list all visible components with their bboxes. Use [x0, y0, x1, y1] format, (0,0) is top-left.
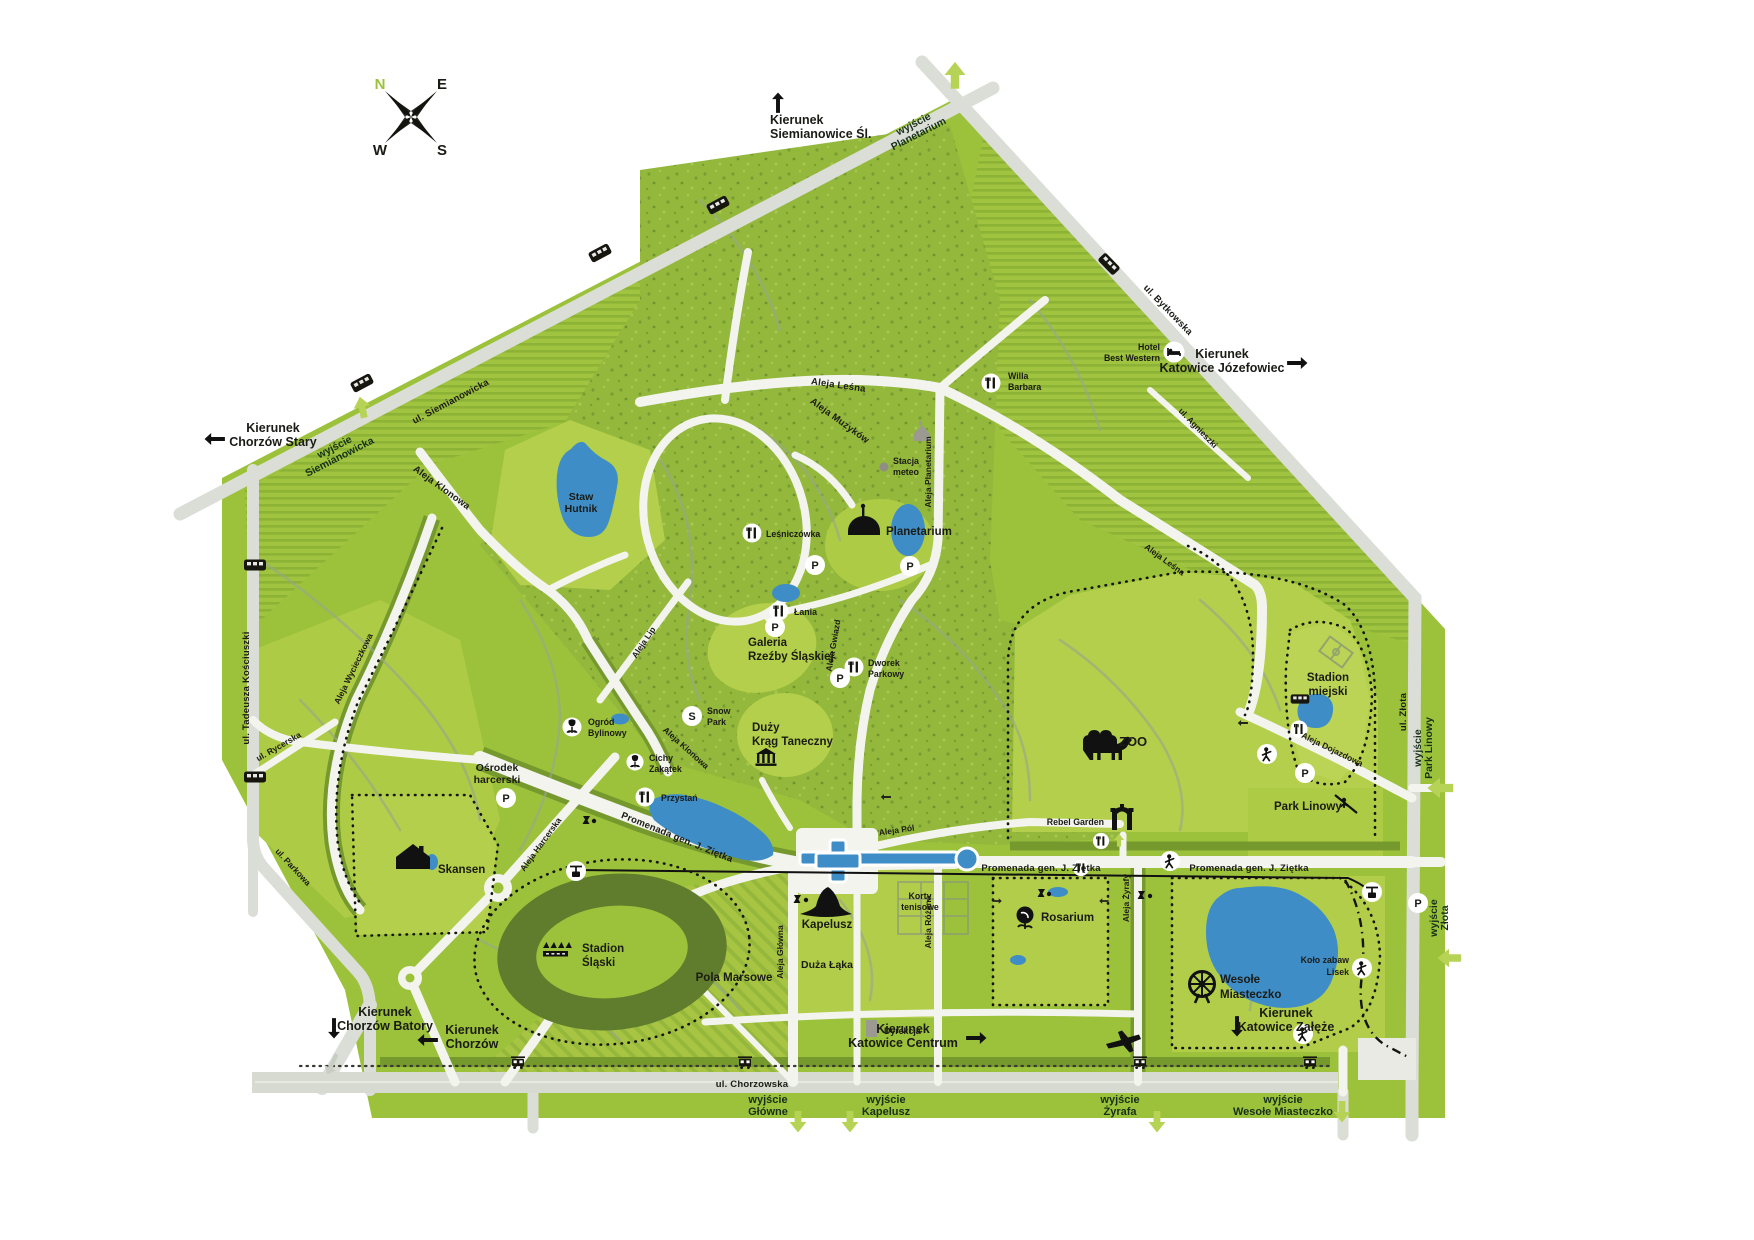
dir-jozefowiec-2: Katowice Józefowiec	[1159, 361, 1284, 375]
poi-stacja-meteo-2: meteo	[893, 467, 920, 477]
poi-planetarium: Planetarium	[886, 526, 952, 538]
poi-stacja-meteo: Stacja	[893, 456, 919, 466]
compass-rose: N E W S	[373, 76, 447, 159]
street-promenada-2: Promenada gen. J. Ziętka	[981, 863, 1101, 874]
poi-wesole-2: Miasteczko	[1220, 989, 1281, 1001]
poi-osrodek: Ośrodek	[476, 762, 519, 774]
parking-letter: P	[811, 560, 818, 572]
poi-rebel-garden: Rebel Garden	[1047, 817, 1104, 827]
compass-s: S	[437, 142, 447, 159]
poi-staw-hutnik-2: Hutnik	[565, 503, 598, 515]
snowpark-icon: S	[682, 706, 702, 726]
playground-icon	[1257, 744, 1277, 764]
street-chorzowska: ul. Chorzowska	[716, 1079, 789, 1090]
poi-hotel: Hotel	[1138, 342, 1160, 352]
exit-zyrafa: wyjście	[1099, 1094, 1139, 1106]
playground-icon	[1352, 958, 1372, 978]
exit-wesole: wyjście	[1262, 1094, 1302, 1106]
restaurant-icon	[1093, 833, 1109, 849]
poi-duzy-krag-2: Krąg Taneczny	[752, 736, 834, 748]
poi-park-linowy: Park Linowy	[1274, 801, 1342, 813]
parking-letter: P	[1414, 898, 1421, 910]
parking-letter: P	[771, 622, 778, 634]
poi-wesole: Wesołe	[1220, 974, 1260, 986]
poi-dworek-2: Parkowy	[868, 669, 904, 679]
dir-zaleze-2: Katowice Załęże	[1238, 1020, 1335, 1034]
poi-dyrekcja: Dyrekcja	[884, 1026, 921, 1036]
poi-willa-2: Barbara	[1008, 382, 1041, 392]
exit-glowne-2: Główne	[748, 1106, 788, 1118]
poi-kolo-zabaw-2: Lisek	[1327, 967, 1350, 977]
restaurant-icon	[982, 374, 1001, 393]
street-kosciuszki: ul. Tadeusza Kościuszki	[241, 631, 252, 744]
parking-letter: P	[906, 561, 913, 573]
playground-icon	[1160, 851, 1180, 871]
exit-wesole-2: Wesołe Miasteczko	[1233, 1106, 1333, 1118]
snowpark-letter: S	[688, 711, 695, 723]
poi-stadion-miejski-2: miejski	[1309, 686, 1348, 698]
parking-letter: P	[1301, 768, 1308, 780]
poi-kapelusz: Kapelusz	[802, 919, 853, 931]
poi-hotel-2: Best Western	[1104, 353, 1160, 363]
dir-chorzow: Kierunek	[445, 1023, 499, 1037]
exit-kapelusz-2: Kapelusz	[862, 1106, 911, 1118]
cable-car-station-icon	[1362, 882, 1382, 902]
garden-icon	[626, 753, 643, 770]
bus-stop-icon	[1291, 694, 1310, 703]
poi-pola-marsowe: Pola Marsowe	[696, 972, 773, 984]
poi-osrodek-2: harcerski	[474, 774, 521, 786]
dir-centrum-2: Katowice Centrum	[848, 1036, 958, 1050]
street-zlota: ul. Złota	[1398, 692, 1409, 731]
poi-duza-laka: Duża Łąka	[801, 959, 853, 971]
poi-skansen: Skansen	[438, 864, 485, 876]
exit-zlota-2: Złota	[1439, 905, 1451, 930]
poi-ogrod: Ogród	[588, 717, 614, 727]
poi-galeria: Galeria	[748, 637, 788, 649]
exit-zyrafa-2: Żyrafa	[1103, 1105, 1137, 1118]
poi-korty-2: tenisowe	[901, 902, 939, 912]
bus-stop-icon	[244, 560, 266, 571]
cable-car-station-icon	[566, 861, 586, 881]
meteo-station-icon	[880, 463, 889, 472]
street-al-planetarium: Aleja Planetarium	[923, 436, 933, 508]
compass-w: W	[373, 142, 388, 159]
poi-cichy: Cichy	[649, 753, 673, 763]
restaurant-icon	[636, 788, 655, 807]
exit-kapelusz: wyjście	[865, 1094, 905, 1106]
poi-dworek: Dworek	[868, 658, 900, 668]
dir-chorzow-stary-2: Chorzów Stary	[229, 435, 317, 449]
poi-stadion-slaski: Stadion	[582, 943, 624, 955]
direction-arrow-icon	[1287, 357, 1307, 369]
park-map: P P P P P P P S N E W S Kierunek Siemian…	[0, 0, 1754, 1240]
parking-letter: P	[836, 673, 843, 685]
poi-przystan: Przystań	[661, 793, 698, 803]
dir-batory: Kierunek	[358, 1005, 412, 1019]
poi-zoo: ZOO	[1119, 734, 1147, 749]
garden-icon	[563, 718, 582, 737]
poi-stadion-slaski-2: Śląski	[582, 956, 615, 969]
poi-galeria-2: Rzeźby Śląskiej	[748, 650, 834, 663]
exit-glowne: wyjście	[747, 1094, 787, 1106]
dir-chorzow-stary: Kierunek	[246, 421, 300, 435]
dir-jozefowiec: Kierunek	[1195, 347, 1249, 361]
poi-lesniczowka: Leśniczówka	[766, 529, 820, 539]
poi-cichy-2: Zakątek	[649, 764, 682, 774]
dir-siemianowice-2: Siemianowice Śl.	[770, 126, 871, 141]
direction-arrow-icon	[205, 433, 225, 445]
direction-arrow-icon	[772, 93, 784, 113]
restaurant-icon	[743, 524, 762, 543]
poi-rosarium: Rosarium	[1041, 912, 1094, 924]
bus-stop-icon	[588, 243, 613, 263]
poi-snow-2: Park	[707, 717, 726, 727]
dir-siemianowice: Kierunek	[770, 113, 824, 127]
dir-batory-2: Chorzów Batory	[337, 1019, 433, 1033]
bus-stop-icon	[244, 772, 266, 783]
compass-n: N	[375, 76, 386, 93]
poi-ogrod-2: Bylinowy	[588, 728, 627, 738]
poi-snow: Snow	[707, 706, 731, 716]
compass-e: E	[437, 76, 447, 93]
poi-willa: Willa	[1008, 371, 1029, 381]
poi-duzy-krag: Duży	[752, 722, 780, 734]
dir-chorzow-2: Chorzów	[446, 1037, 499, 1051]
street-zyrafy: Aleja Żyrafy	[1121, 874, 1131, 922]
poi-kolo-zabaw: Koło zabaw	[1301, 955, 1350, 965]
dir-zaleze: Kierunek	[1259, 1006, 1313, 1020]
exit-park-linowy-2: Park Linowy	[1423, 717, 1435, 779]
parking-letter: P	[502, 793, 509, 805]
street-promenada-3: Promenada gen. J. Ziętka	[1189, 863, 1309, 874]
bus-stop-icon	[350, 373, 375, 393]
poi-stadion-miejski: Stadion	[1307, 672, 1349, 684]
poi-korty: Korty	[909, 891, 932, 901]
poi-lania: Łania	[794, 607, 817, 617]
poi-staw-hutnik: Staw	[569, 491, 594, 503]
hotel-icon	[1164, 342, 1185, 363]
street-glowna: Aleja Główna	[775, 925, 785, 979]
